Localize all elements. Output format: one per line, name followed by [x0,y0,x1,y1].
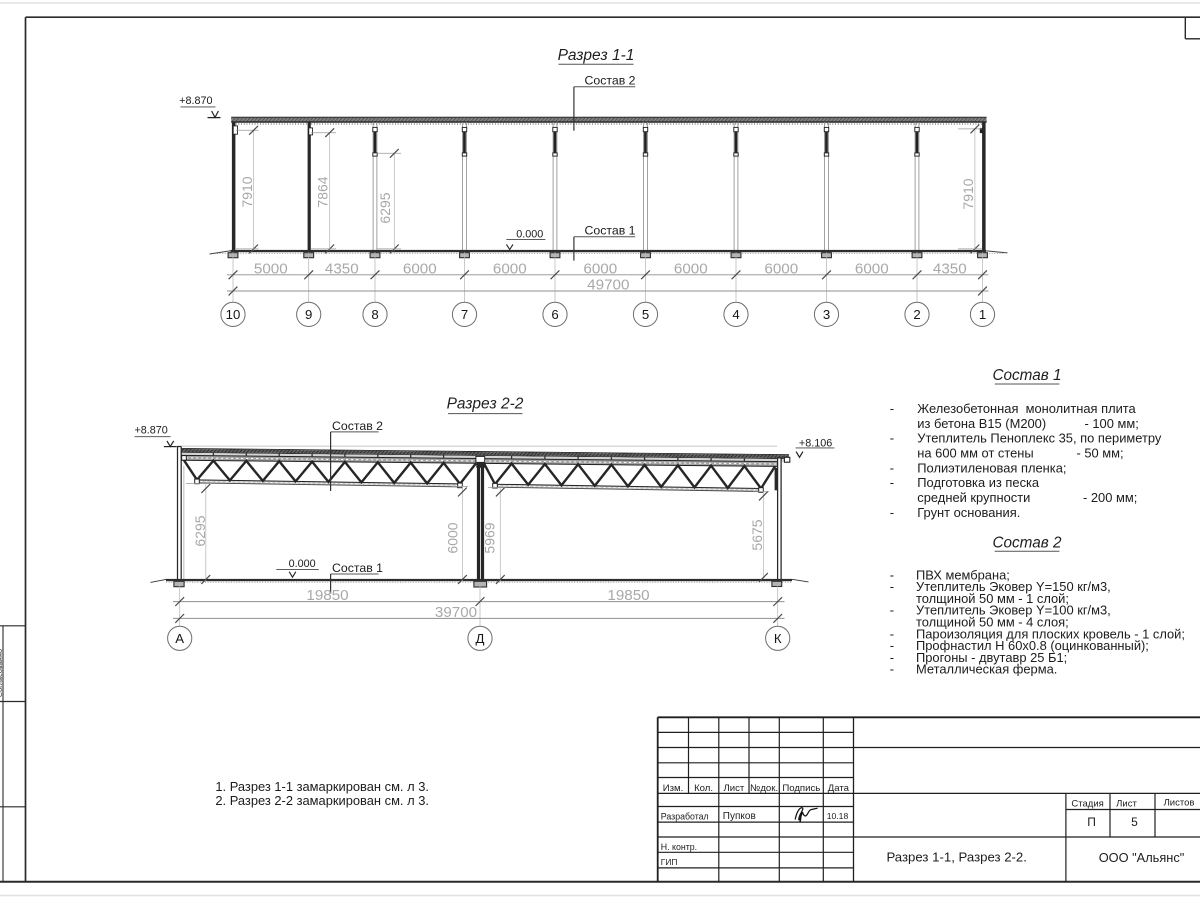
svg-text:4: 4 [732,307,739,322]
svg-text:5: 5 [642,307,649,322]
svg-text:-: - [890,401,894,416]
svg-text:19850: 19850 [607,587,649,604]
svg-text:-: - [890,475,894,490]
svg-text:Состав 1: Состав 1 [585,224,636,238]
svg-text:Разрез 1-1: Разрез 1-1 [558,47,635,64]
svg-text:7910: 7910 [960,178,976,209]
svg-text:6000: 6000 [674,260,708,277]
svg-text:Разрез 1-1, Разрез 2-2.: Разрез 1-1, Разрез 2-2. [886,850,1026,865]
svg-text:5: 5 [1131,815,1138,829]
svg-text:Изм.: Изм. [663,783,684,794]
svg-text:Кол.: Кол. [694,783,713,794]
svg-text:+8.870: +8.870 [134,425,167,437]
svg-text:Разработал: Разработал [661,811,709,821]
svg-text:Д: Д [476,631,485,646]
svg-text:Состав 2: Состав 2 [585,73,636,87]
svg-text:2: 2 [913,307,920,322]
svg-text:Полиэтиленовая пленка;: Полиэтиленовая пленка; [917,460,1066,475]
svg-text:К: К [774,631,782,646]
svg-text:6295: 6295 [377,192,393,223]
svg-text:Состав 1: Состав 1 [992,367,1061,384]
svg-text:Подпись: Подпись [782,783,820,794]
svg-text:19850: 19850 [306,587,348,604]
svg-text:1. Разрез 1-1 замаркирован см.: 1. Разрез 1-1 замаркирован см. л 3. [215,779,429,794]
svg-text:6: 6 [551,307,558,322]
svg-text:- 50 мм;: - 50 мм; [1077,445,1124,460]
svg-text:0.000: 0.000 [289,558,316,570]
svg-text:9: 9 [305,307,312,322]
svg-text:Стадия: Стадия [1071,798,1103,809]
svg-text:6000: 6000 [583,260,617,277]
svg-text:6000: 6000 [764,260,798,277]
svg-text:П: П [1087,815,1096,829]
svg-text:Согласованно: Согласованно [0,649,4,697]
svg-text:А: А [175,631,184,646]
svg-text:7: 7 [461,307,468,322]
svg-text:ООО "Альянс": ООО "Альянс" [1099,850,1185,865]
svg-text:10: 10 [226,307,241,322]
svg-text:средней крупности: средней крупности [917,490,1030,505]
svg-text:Разрез 2-2: Разрез 2-2 [447,396,524,413]
svg-text:Металлическая ферма.: Металлическая ферма. [916,662,1057,677]
svg-text:8: 8 [371,307,378,322]
svg-text:5675: 5675 [749,519,765,550]
svg-text:Состав 2: Состав 2 [992,535,1062,552]
svg-text:Лист: Лист [723,783,744,794]
svg-text:Грунт основания.: Грунт основания. [917,505,1020,520]
svg-text:2. Разрез 2-2 замаркирован см.: 2. Разрез 2-2 замаркирован см. л 3. [215,793,429,808]
svg-text:Железобетонная монолитная пли: Железобетонная монолитная плита [917,401,1136,416]
svg-text:5969: 5969 [482,522,498,553]
svg-text:6295: 6295 [192,515,208,546]
svg-text:39700: 39700 [435,604,477,621]
svg-text:Дата: Дата [828,783,850,794]
svg-text:3: 3 [823,307,830,322]
svg-text:Подготовка из песка: Подготовка из песка [917,475,1040,490]
svg-text:+8.870: +8.870 [179,95,212,107]
svg-text:5000: 5000 [254,260,288,277]
svg-text:4350: 4350 [933,260,967,277]
svg-text:-: - [890,662,894,677]
svg-text:из бетона В15 (М200): из бетона В15 (М200) [917,416,1046,431]
svg-text:Лист: Лист [1116,798,1137,809]
svg-text:10.18: 10.18 [827,811,849,821]
svg-text:Состав 2: Состав 2 [332,419,383,433]
svg-text:-: - [890,460,894,475]
svg-text:49700: 49700 [587,276,629,293]
svg-text:1: 1 [979,307,986,322]
svg-text:0.000: 0.000 [516,228,543,240]
svg-text:Н. контр.: Н. контр. [661,842,697,852]
svg-text:6000: 6000 [403,260,437,277]
svg-text:-: - [890,603,894,618]
svg-text:- 100 мм;: - 100 мм; [1085,416,1139,431]
svg-text:4350: 4350 [325,260,359,277]
svg-text:Листов: Листов [1164,797,1195,808]
svg-text:-: - [890,431,894,446]
svg-text:ГИП: ГИП [661,857,678,867]
svg-text:на 600 мм от стены: на 600 мм от стены [917,445,1033,460]
svg-text:6000: 6000 [855,260,889,277]
svg-text:-: - [890,505,894,520]
svg-text:Состав 1: Состав 1 [332,561,383,575]
svg-text:6000: 6000 [493,260,527,277]
svg-text:6000: 6000 [445,522,461,553]
svg-text:Пупков: Пупков [723,811,756,822]
svg-text:Утеплитель Пеноплекс 35, по пе: Утеплитель Пеноплекс 35, по периметру [917,431,1162,446]
svg-text:7910: 7910 [239,176,255,207]
svg-text:- 200 мм;: - 200 мм; [1083,490,1137,505]
svg-text:7864: 7864 [314,176,330,207]
svg-text:№док.: №док. [750,783,778,794]
svg-text:-: - [890,579,894,594]
